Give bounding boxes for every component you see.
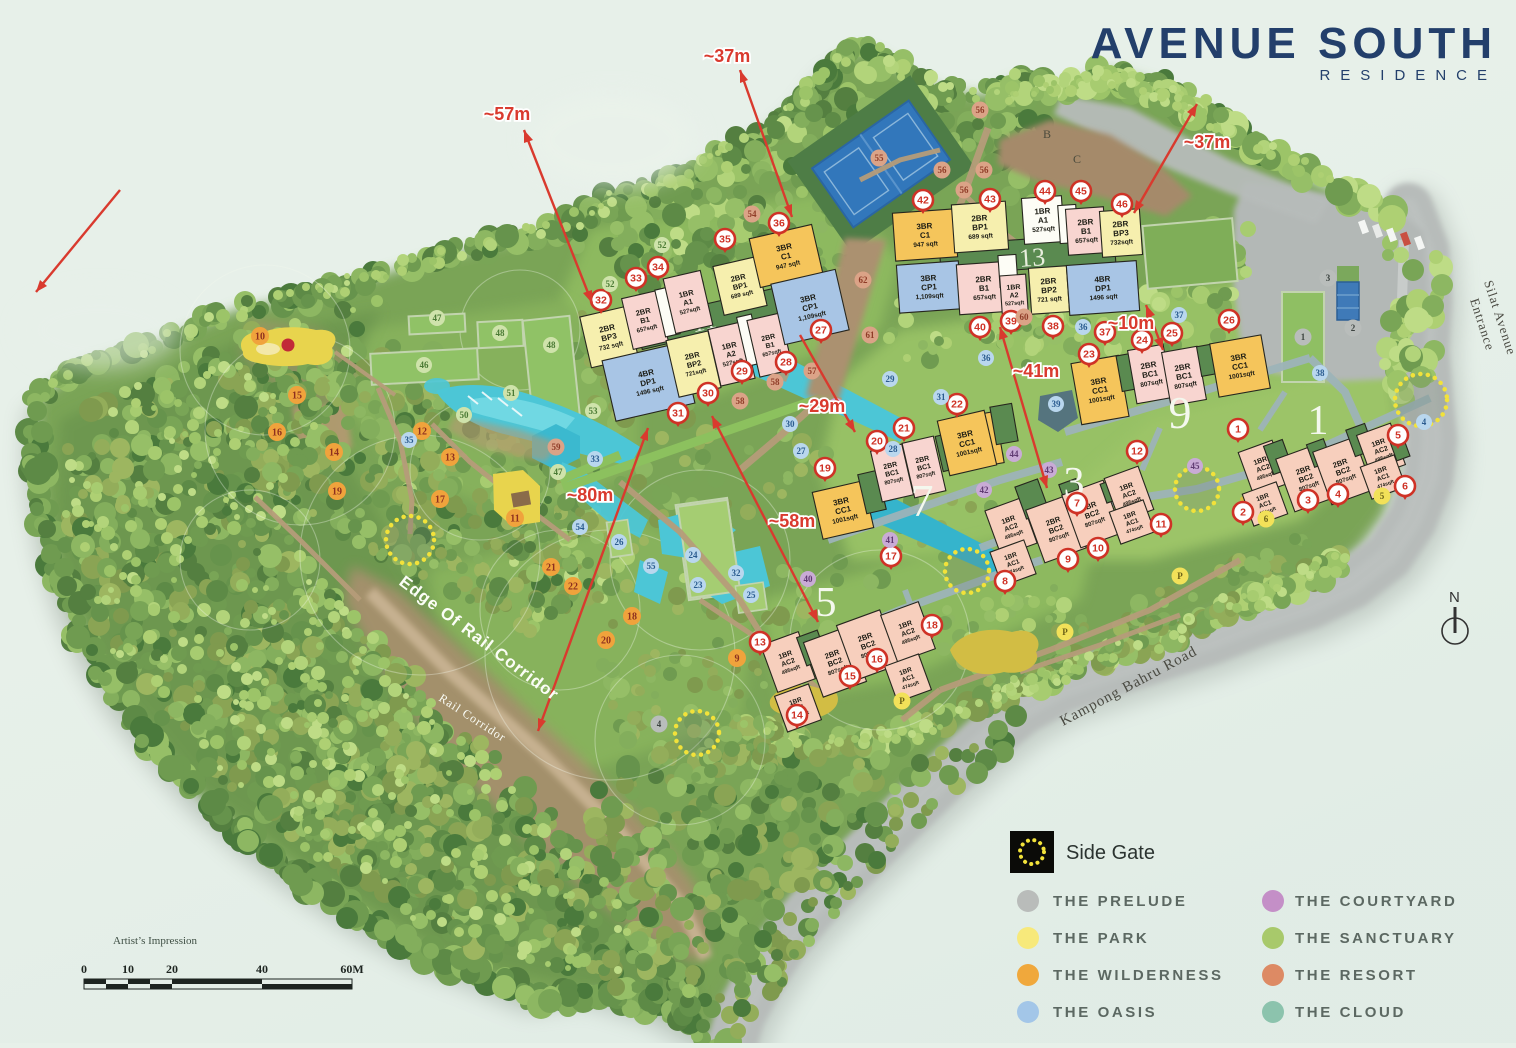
svg-text:THE OASIS: THE OASIS (1053, 1004, 1157, 1021)
svg-text:26: 26 (615, 537, 625, 547)
svg-text:32: 32 (595, 295, 607, 307)
svg-text:38: 38 (1047, 321, 1059, 333)
svg-text:2: 2 (1351, 323, 1356, 333)
svg-text:N: N (1449, 589, 1460, 606)
svg-text:30: 30 (786, 419, 796, 429)
svg-text:3: 3 (1326, 273, 1331, 283)
svg-text:56: 56 (938, 165, 948, 175)
svg-text:41: 41 (886, 535, 896, 545)
svg-text:16: 16 (272, 427, 282, 438)
svg-text:13: 13 (445, 452, 455, 463)
svg-text:10: 10 (1092, 543, 1104, 555)
svg-text:31: 31 (672, 408, 684, 420)
svg-text:35: 35 (405, 435, 415, 445)
svg-text:50: 50 (460, 410, 470, 420)
svg-text:33: 33 (591, 454, 601, 464)
svg-text:4: 4 (657, 719, 662, 729)
svg-text:~80m: ~80m (567, 485, 614, 505)
svg-text:48: 48 (496, 328, 506, 338)
svg-text:47: 47 (554, 467, 564, 477)
svg-text:A1: A1 (1038, 215, 1049, 225)
svg-text:19: 19 (819, 463, 831, 475)
svg-text:28: 28 (780, 357, 792, 369)
svg-text:42: 42 (980, 485, 990, 495)
svg-text:56: 56 (980, 165, 990, 175)
svg-text:14: 14 (791, 710, 803, 722)
svg-text:34: 34 (652, 262, 664, 274)
svg-text:43: 43 (1045, 465, 1055, 475)
svg-text:~10m: ~10m (1108, 313, 1155, 333)
svg-text:25: 25 (747, 590, 757, 600)
svg-text:40: 40 (974, 322, 986, 334)
svg-text:24: 24 (689, 550, 699, 560)
svg-text:P: P (899, 696, 905, 706)
svg-text:15: 15 (292, 390, 302, 401)
svg-text:P: P (1177, 571, 1183, 581)
svg-text:27: 27 (815, 325, 827, 337)
svg-text:60: 60 (1020, 312, 1030, 322)
svg-text:22: 22 (568, 581, 578, 592)
svg-text:39: 39 (1005, 316, 1017, 328)
svg-text:54: 54 (748, 209, 758, 219)
svg-text:58: 58 (771, 377, 781, 387)
svg-text:12: 12 (417, 426, 427, 437)
svg-text:7: 7 (1074, 498, 1080, 510)
svg-text:2: 2 (1240, 507, 1246, 519)
svg-text:BP2: BP2 (1041, 285, 1058, 295)
svg-text:~58m: ~58m (769, 511, 816, 531)
svg-text:A2: A2 (1009, 292, 1019, 300)
svg-text:THE WILDERNESS: THE WILDERNESS (1053, 967, 1224, 984)
svg-text:46: 46 (1116, 199, 1128, 211)
svg-text:17: 17 (435, 494, 445, 505)
svg-text:52: 52 (606, 279, 616, 289)
svg-text:THE PARK: THE PARK (1053, 930, 1149, 947)
svg-text:~57m: ~57m (484, 104, 531, 124)
svg-text:10: 10 (255, 331, 265, 342)
svg-text:23: 23 (694, 580, 704, 590)
svg-text:1: 1 (1308, 398, 1329, 444)
svg-text:20: 20 (166, 962, 178, 976)
svg-text:45: 45 (1075, 186, 1087, 198)
svg-text:9: 9 (1065, 554, 1071, 566)
svg-text:4: 4 (1422, 417, 1427, 427)
svg-text:44: 44 (1039, 186, 1051, 198)
svg-text:9: 9 (1169, 387, 1192, 438)
svg-text:THE SANCTUARY: THE SANCTUARY (1295, 930, 1457, 947)
svg-text:BP1: BP1 (972, 222, 989, 232)
svg-text:15: 15 (844, 671, 856, 683)
svg-text:1: 1 (1235, 424, 1241, 436)
svg-text:47: 47 (433, 313, 443, 323)
svg-text:THE CLOUD: THE CLOUD (1295, 1004, 1406, 1021)
svg-text:Artist’s Impression: Artist’s Impression (113, 935, 198, 947)
svg-text:31: 31 (937, 392, 947, 402)
svg-text:16: 16 (871, 654, 883, 666)
svg-text:55: 55 (875, 153, 885, 163)
svg-text:23: 23 (1083, 349, 1095, 361)
svg-text:B: B (1043, 127, 1051, 141)
svg-text:53: 53 (589, 406, 599, 416)
svg-text:6: 6 (1402, 481, 1408, 493)
svg-text:25: 25 (1166, 328, 1178, 340)
svg-text:45: 45 (1191, 461, 1201, 471)
svg-text:18: 18 (926, 620, 938, 632)
svg-text:14: 14 (329, 447, 339, 458)
svg-text:51: 51 (507, 388, 517, 398)
svg-text:24: 24 (1136, 335, 1148, 347)
svg-text:13: 13 (754, 637, 766, 649)
svg-text:5: 5 (816, 580, 837, 626)
svg-text:RESIDENCE: RESIDENCE (1319, 67, 1497, 84)
svg-text:CP1: CP1 (921, 282, 938, 292)
svg-text:B1: B1 (979, 283, 990, 293)
svg-text:19: 19 (332, 486, 342, 497)
svg-text:29: 29 (736, 366, 748, 378)
svg-text:59: 59 (552, 442, 562, 452)
svg-text:55: 55 (647, 561, 657, 571)
svg-text:61: 61 (866, 330, 876, 340)
svg-text:THE PRELUDE: THE PRELUDE (1053, 893, 1187, 910)
svg-text:39: 39 (1052, 399, 1062, 409)
svg-text:46: 46 (420, 360, 430, 370)
svg-text:21: 21 (546, 562, 556, 573)
svg-text:18: 18 (627, 611, 637, 622)
svg-text:42: 42 (917, 195, 929, 207)
svg-text:~41m: ~41m (1013, 361, 1060, 381)
svg-text:P: P (1062, 627, 1068, 637)
svg-text:8: 8 (1002, 576, 1008, 588)
svg-text:26: 26 (1223, 315, 1235, 327)
svg-text:9: 9 (735, 653, 740, 664)
svg-text:7: 7 (911, 475, 934, 526)
svg-text:12: 12 (1131, 446, 1143, 458)
svg-text:60M: 60M (340, 962, 363, 976)
svg-text:36: 36 (982, 353, 992, 363)
svg-text:28: 28 (889, 444, 899, 454)
svg-text:22: 22 (951, 399, 963, 411)
svg-text:11: 11 (1155, 519, 1166, 531)
svg-text:DP1: DP1 (1095, 283, 1112, 293)
svg-text:C: C (1073, 152, 1081, 166)
svg-text:38: 38 (1316, 368, 1326, 378)
svg-text:THE RESORT: THE RESORT (1295, 967, 1418, 984)
svg-text:54: 54 (576, 522, 586, 532)
svg-text:0: 0 (81, 962, 87, 976)
svg-text:36: 36 (1079, 322, 1089, 332)
svg-text:32: 32 (732, 568, 742, 578)
svg-text:5: 5 (1395, 430, 1401, 442)
svg-text:1BR: 1BR (1006, 284, 1020, 292)
svg-text:56: 56 (976, 105, 986, 115)
svg-text:20: 20 (871, 436, 883, 448)
svg-text:30: 30 (702, 388, 714, 400)
svg-text:58: 58 (736, 396, 746, 406)
svg-text:10: 10 (122, 962, 134, 976)
svg-text:57: 57 (808, 366, 818, 376)
svg-text:11: 11 (510, 513, 519, 524)
svg-text:40: 40 (256, 962, 268, 976)
svg-text:62: 62 (859, 275, 869, 285)
svg-text:AVENUE SOUTH: AVENUE SOUTH (1091, 19, 1497, 68)
svg-text:~29m: ~29m (799, 396, 846, 416)
svg-text:~37m: ~37m (704, 46, 751, 66)
svg-text:37: 37 (1175, 310, 1185, 320)
svg-text:6: 6 (1264, 514, 1269, 524)
svg-text:52: 52 (658, 240, 668, 250)
svg-text:44: 44 (1010, 449, 1020, 459)
svg-text:4: 4 (1335, 489, 1341, 501)
svg-text:3: 3 (1305, 495, 1311, 507)
svg-text:C1: C1 (920, 230, 931, 240)
svg-text:56: 56 (960, 185, 970, 195)
svg-text:17: 17 (885, 551, 897, 563)
svg-text:THE COURTYARD: THE COURTYARD (1295, 893, 1457, 910)
svg-text:21: 21 (898, 423, 910, 435)
svg-text:27: 27 (797, 446, 807, 456)
svg-text:Side Gate: Side Gate (1066, 842, 1155, 864)
svg-text:43: 43 (984, 194, 996, 206)
svg-text:BP3: BP3 (1113, 228, 1130, 238)
svg-text:~37m: ~37m (1184, 132, 1231, 152)
svg-text:36: 36 (773, 218, 785, 230)
svg-text:1: 1 (1301, 332, 1306, 342)
svg-text:29: 29 (886, 374, 896, 384)
svg-text:33: 33 (630, 273, 642, 285)
svg-text:40: 40 (804, 574, 814, 584)
svg-text:20: 20 (601, 635, 611, 646)
svg-text:B1: B1 (1081, 226, 1092, 236)
svg-text:35: 35 (719, 234, 731, 246)
svg-text:5: 5 (1380, 491, 1385, 501)
svg-text:48: 48 (547, 340, 557, 350)
